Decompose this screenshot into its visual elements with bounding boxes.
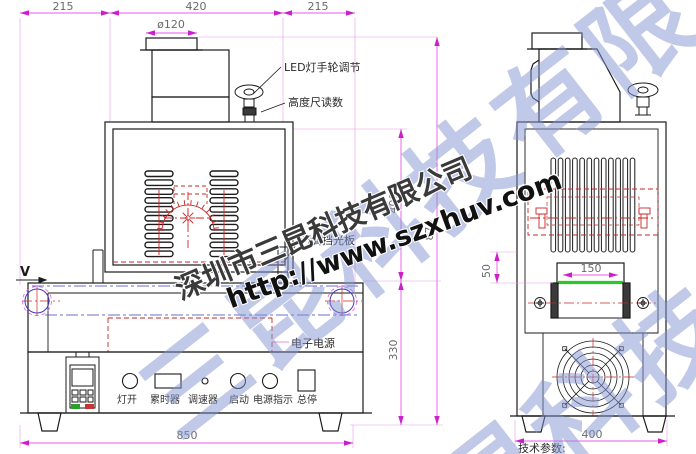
fan-centerlines: [552, 338, 634, 416]
start-label: 启动: [229, 393, 249, 406]
dim-total-height: 870: [423, 220, 436, 241]
hood-handle: [531, 60, 539, 102]
dim-top-center: 420: [186, 0, 207, 13]
lamp-housing-inner: [113, 129, 285, 265]
cad-drawing-screenshot: 215 420 215 ø120 400 330 870 850: [0, 0, 696, 454]
control-panel: [123, 370, 316, 391]
hour-meter-label: 累时器: [150, 394, 180, 406]
dim-opening-width: 150: [581, 262, 602, 275]
lamp-on-label: 灯开: [117, 394, 137, 406]
power-indicator-label: 电源指示: [253, 393, 293, 406]
foot-side-right: [643, 416, 666, 432]
psu-label: 电子电源: [291, 336, 335, 350]
machine-drawing: 215 420 215 ø120 400 330 870 850: [0, 0, 696, 454]
fan-housing-upper: [152, 50, 229, 97]
dim-base-width: 850: [177, 429, 198, 442]
dim-height-lower: 330: [387, 340, 400, 361]
foot-front-left: [38, 413, 61, 431]
control-labels: 灯开 累时器 调速器 启动 电源指示 总停: [117, 393, 317, 406]
inverter-run-key: [71, 404, 80, 409]
dim-side-base-width: 400: [582, 428, 603, 441]
height-gauge-scale: [243, 108, 256, 115]
dim-height-upper: 400: [387, 193, 400, 214]
belt-direction-marker: V: [16, 265, 46, 283]
tech-params-note: 技术参数:: [518, 441, 566, 454]
side-hood: [539, 49, 620, 122]
dim-duct-diameter: ø120: [157, 18, 185, 31]
dim-top-right: 215: [308, 0, 329, 13]
speed-knob-label: 调速器: [188, 394, 218, 406]
direction-letter: V: [20, 265, 30, 280]
belt-side-wall-right: [623, 283, 630, 318]
exhaust-duct: [146, 38, 197, 50]
side-lamp-carriage: [528, 189, 658, 235]
speed-inverter: [66, 352, 99, 413]
dim-opening-height: 50: [480, 264, 493, 278]
conveyor-centerlines: [22, 286, 362, 315]
power-indicator-lamp: [263, 374, 278, 389]
start-button: [231, 374, 246, 389]
side-exhaust-duct: [532, 33, 582, 49]
side-handwheel-assembly: [628, 83, 658, 115]
belt-side-wall-left: [551, 283, 558, 318]
led-wheel-label: LED灯手轮调节: [284, 60, 361, 74]
fan-housing-lower: [152, 97, 229, 122]
inverter-stop-key: [85, 404, 94, 409]
foot-front-right: [319, 413, 342, 431]
psu-dashed-box: [108, 318, 272, 352]
side-handwheel-icon: [628, 83, 658, 97]
vent-slots-side: [551, 158, 635, 252]
foot-side-left: [522, 416, 545, 432]
lamp-housing-outer: [105, 122, 293, 272]
master-stop-label: 总停: [297, 393, 317, 406]
inverter-display: [72, 369, 93, 386]
lamp-on-button: [123, 374, 138, 389]
speed-knob: [202, 378, 208, 384]
hour-meter: [155, 374, 181, 388]
baffle-label: 可调挡光板: [300, 233, 355, 247]
master-stop-button: [298, 370, 315, 391]
front-view: 215 420 215 ø120 400 330 870 850: [16, 0, 443, 448]
handwheel-assembly: [235, 85, 263, 122]
height-gauge-label: 高度尺读数: [288, 95, 343, 109]
lamp-mechanism: [113, 186, 285, 262]
side-view: 150 50 400 技术参数:: [480, 33, 675, 454]
dim-top-left: 215: [53, 0, 74, 13]
handwheel-icon: [235, 85, 263, 99]
